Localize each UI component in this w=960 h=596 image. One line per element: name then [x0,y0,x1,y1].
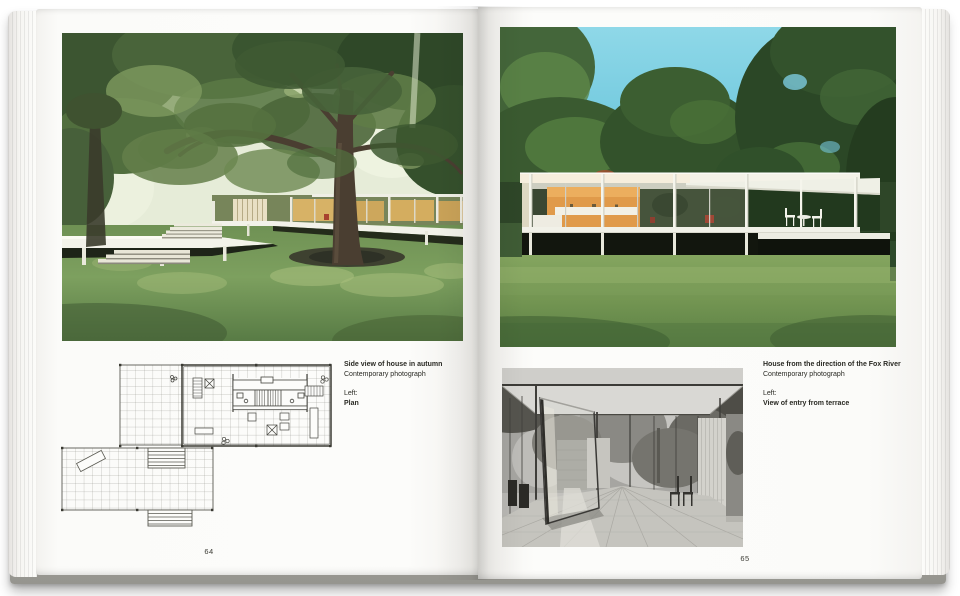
terrace-entry-photo [502,368,743,547]
floor-slabs [522,227,890,257]
caption-ref-title: Plan [344,399,469,409]
book-spread: Side view of house in autumn Contemporar… [8,6,950,588]
right-exterior [726,414,743,522]
caption-ref-title: View of entry from terrace [763,399,918,409]
upper-terrace-grid [120,365,182,445]
glass-interior [522,183,745,230]
autumn-side-view-photo [62,33,463,341]
right-page-caption: House from the direction of the Fox Rive… [763,360,918,409]
caption-credit: Contemporary photograph [344,370,469,380]
right-page: House from the direction of the Fox Rive… [478,7,922,579]
left-page-stack-edge [8,11,37,577]
core-unit [233,374,307,412]
right-page-stack-edge [921,9,950,575]
caption-ref-label: Left: [344,389,469,399]
pivot-door [540,398,599,524]
house-structure [500,173,896,258]
page-number-left: 64 [194,547,224,556]
floor-plan-drawing [58,362,334,534]
page-number-right: 65 [730,554,760,563]
left-page: Side view of house in autumn Contemporar… [36,9,478,575]
ceiling [502,368,743,415]
caption-ref-label: Left: [763,389,918,399]
lower-terrace-grid [62,448,213,510]
left-page-caption: Side view of house in autumn Contemporar… [344,360,469,409]
caption-credit: Contemporary photograph [763,370,918,380]
fox-river-view-photo [500,27,896,347]
caption-gap [344,380,469,389]
caption-gap [763,380,918,389]
caption-title: House from the direction of the Fox Rive… [763,360,918,370]
caption-title: Side view of house in autumn [344,360,469,370]
